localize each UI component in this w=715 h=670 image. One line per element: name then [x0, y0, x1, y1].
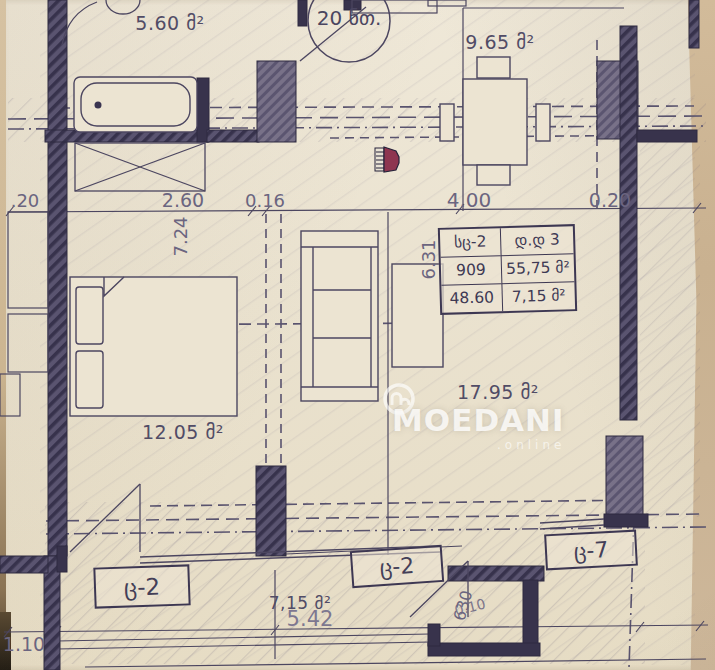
dim-542: 5.42 — [255, 607, 365, 631]
dim-724-vertical: 7.24 — [170, 207, 191, 267]
info-cell: 7,15 მ² — [501, 281, 575, 311]
dim-016: 0.16 — [237, 190, 293, 211]
dim-110: 1.10 — [0, 633, 48, 655]
bathtub — [74, 77, 197, 132]
window-tag-middle: ც-2 — [350, 545, 444, 588]
radiator — [375, 147, 399, 172]
area-label-living: 17.95 მ² — [443, 381, 553, 403]
apartment-info-table: სც-2 დ.დ 3 909 55,75 მ² 48.60 მ² 7,15 მ² — [438, 224, 577, 315]
sofa — [301, 231, 378, 401]
dim-020-right: 0.20 — [580, 189, 640, 211]
info-cell: 909 — [441, 255, 502, 285]
area-label-bedroom: 12.05 მ² — [128, 421, 238, 443]
window-tag-left: ც-2 — [93, 564, 190, 608]
info-cell: 55,75 მ² — [501, 253, 575, 283]
area-label-kitchen: 9.65 მ² — [450, 31, 550, 53]
dim-400: 4.00 — [437, 188, 501, 212]
unit-number-badge: 20 ნთ. — [313, 6, 385, 30]
window-tag-right: ც-7 — [544, 530, 638, 571]
floorplan-photo: 5.60 მ² 9.65 მ² 12.05 მ² 17.95 მ² 7,15 მ… — [0, 0, 715, 670]
dim-631-vertical: 6.31 — [418, 230, 439, 290]
info-cell: სც-2 — [440, 228, 501, 257]
dim-020-left: .20 — [5, 190, 45, 211]
info-cell: დ.დ 3 — [500, 226, 574, 255]
area-label-bathroom: 5.60 მ² — [120, 12, 220, 34]
bed — [70, 277, 237, 416]
info-cell: 48.60 მ² — [441, 283, 502, 313]
